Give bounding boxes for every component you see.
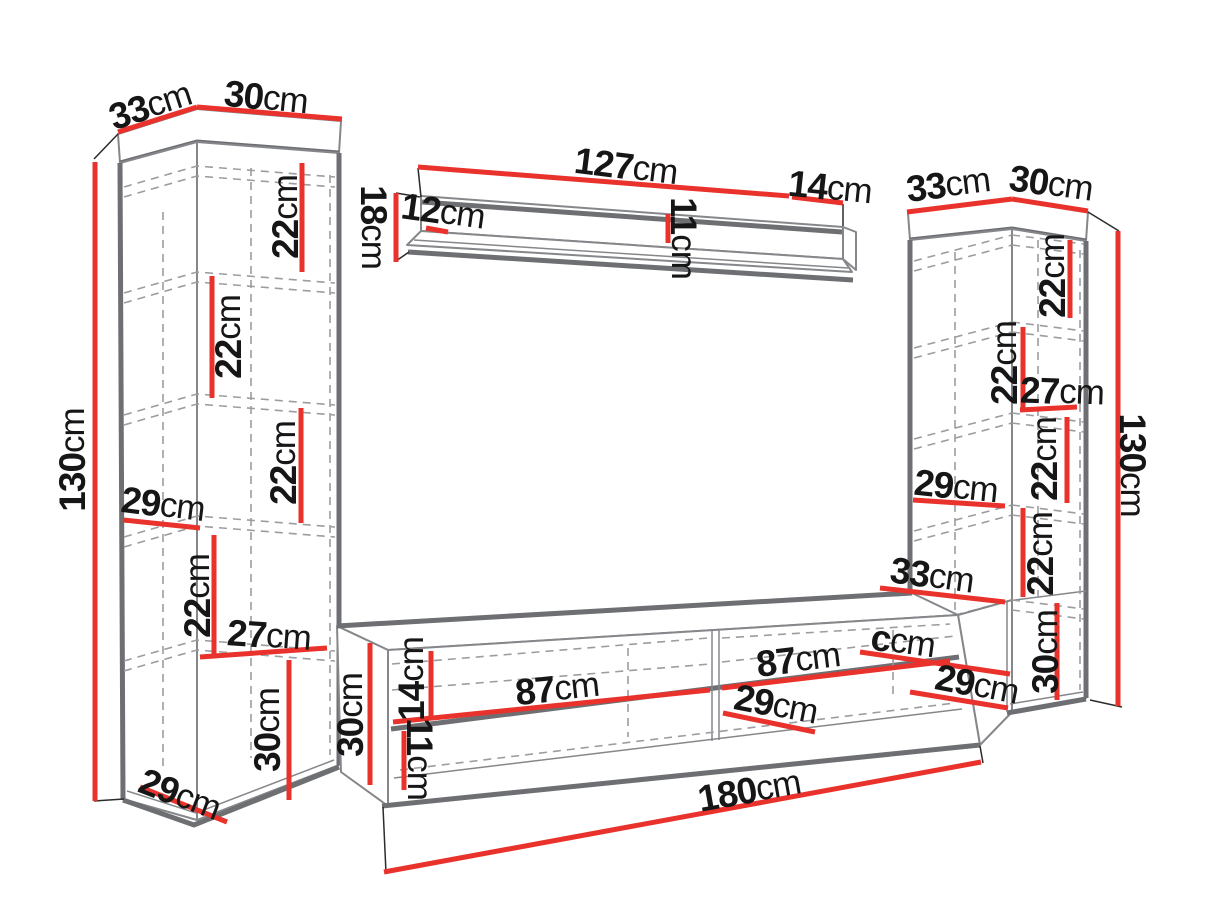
dim-label-left-inner-depth: 27cm (226, 612, 312, 659)
dim-label-tv-lower-height: 11cm (400, 718, 441, 800)
dim-label-tv-upper-height: 14cm (391, 637, 432, 721)
dim-label-left-height: 130cm (52, 408, 93, 511)
dim-label-left-section-1: 22cm (265, 175, 306, 259)
dim-label-left-bottom-height: 30cm (247, 688, 288, 772)
dim-label-right-inner-depth: 27cm (1019, 369, 1104, 413)
dim-label-right-section-1: 22cm (1032, 234, 1073, 318)
dim-label-right-section-4: 22cm (1020, 512, 1061, 596)
dim-label-shelf-back-height: 11cm (664, 197, 705, 279)
dim-label-shelf-width: 127cm (572, 139, 680, 192)
dim-label-shelf-depth: 14cm (786, 162, 874, 212)
dim-label-right-height: 130cm (1113, 413, 1154, 516)
dim-label-left-top-width: 30cm (222, 72, 310, 122)
dim-label-shelf-height: 18cm (354, 185, 395, 269)
dim-label-shelf-board-depth: 12cm (399, 185, 488, 237)
dim-label-left-section-3: 22cm (263, 421, 304, 505)
dim-label-tv-height: 30cm (330, 673, 371, 757)
dim-label-right-bottom-height: 30cm (1025, 610, 1066, 694)
dim-label-right-inner-width: 29cm (912, 461, 1000, 511)
dim-label-right-section-2: 22cm (984, 321, 1025, 405)
left-cabinet-left-edge (120, 163, 123, 799)
dim-label-left-section-2: 22cm (208, 295, 249, 379)
dim-label-left-section-4: 22cm (177, 554, 218, 638)
diagram-stage: 33cm30cm130cm22cm22cm22cm29cm22cm27cm30c… (0, 0, 1214, 910)
left-cabinet (118, 109, 341, 825)
furniture-dimension-diagram: 33cm30cm130cm22cm22cm22cm29cm22cm27cm30c… (0, 0, 1214, 910)
dim-label-right-section-3: 22cm (1024, 417, 1065, 501)
